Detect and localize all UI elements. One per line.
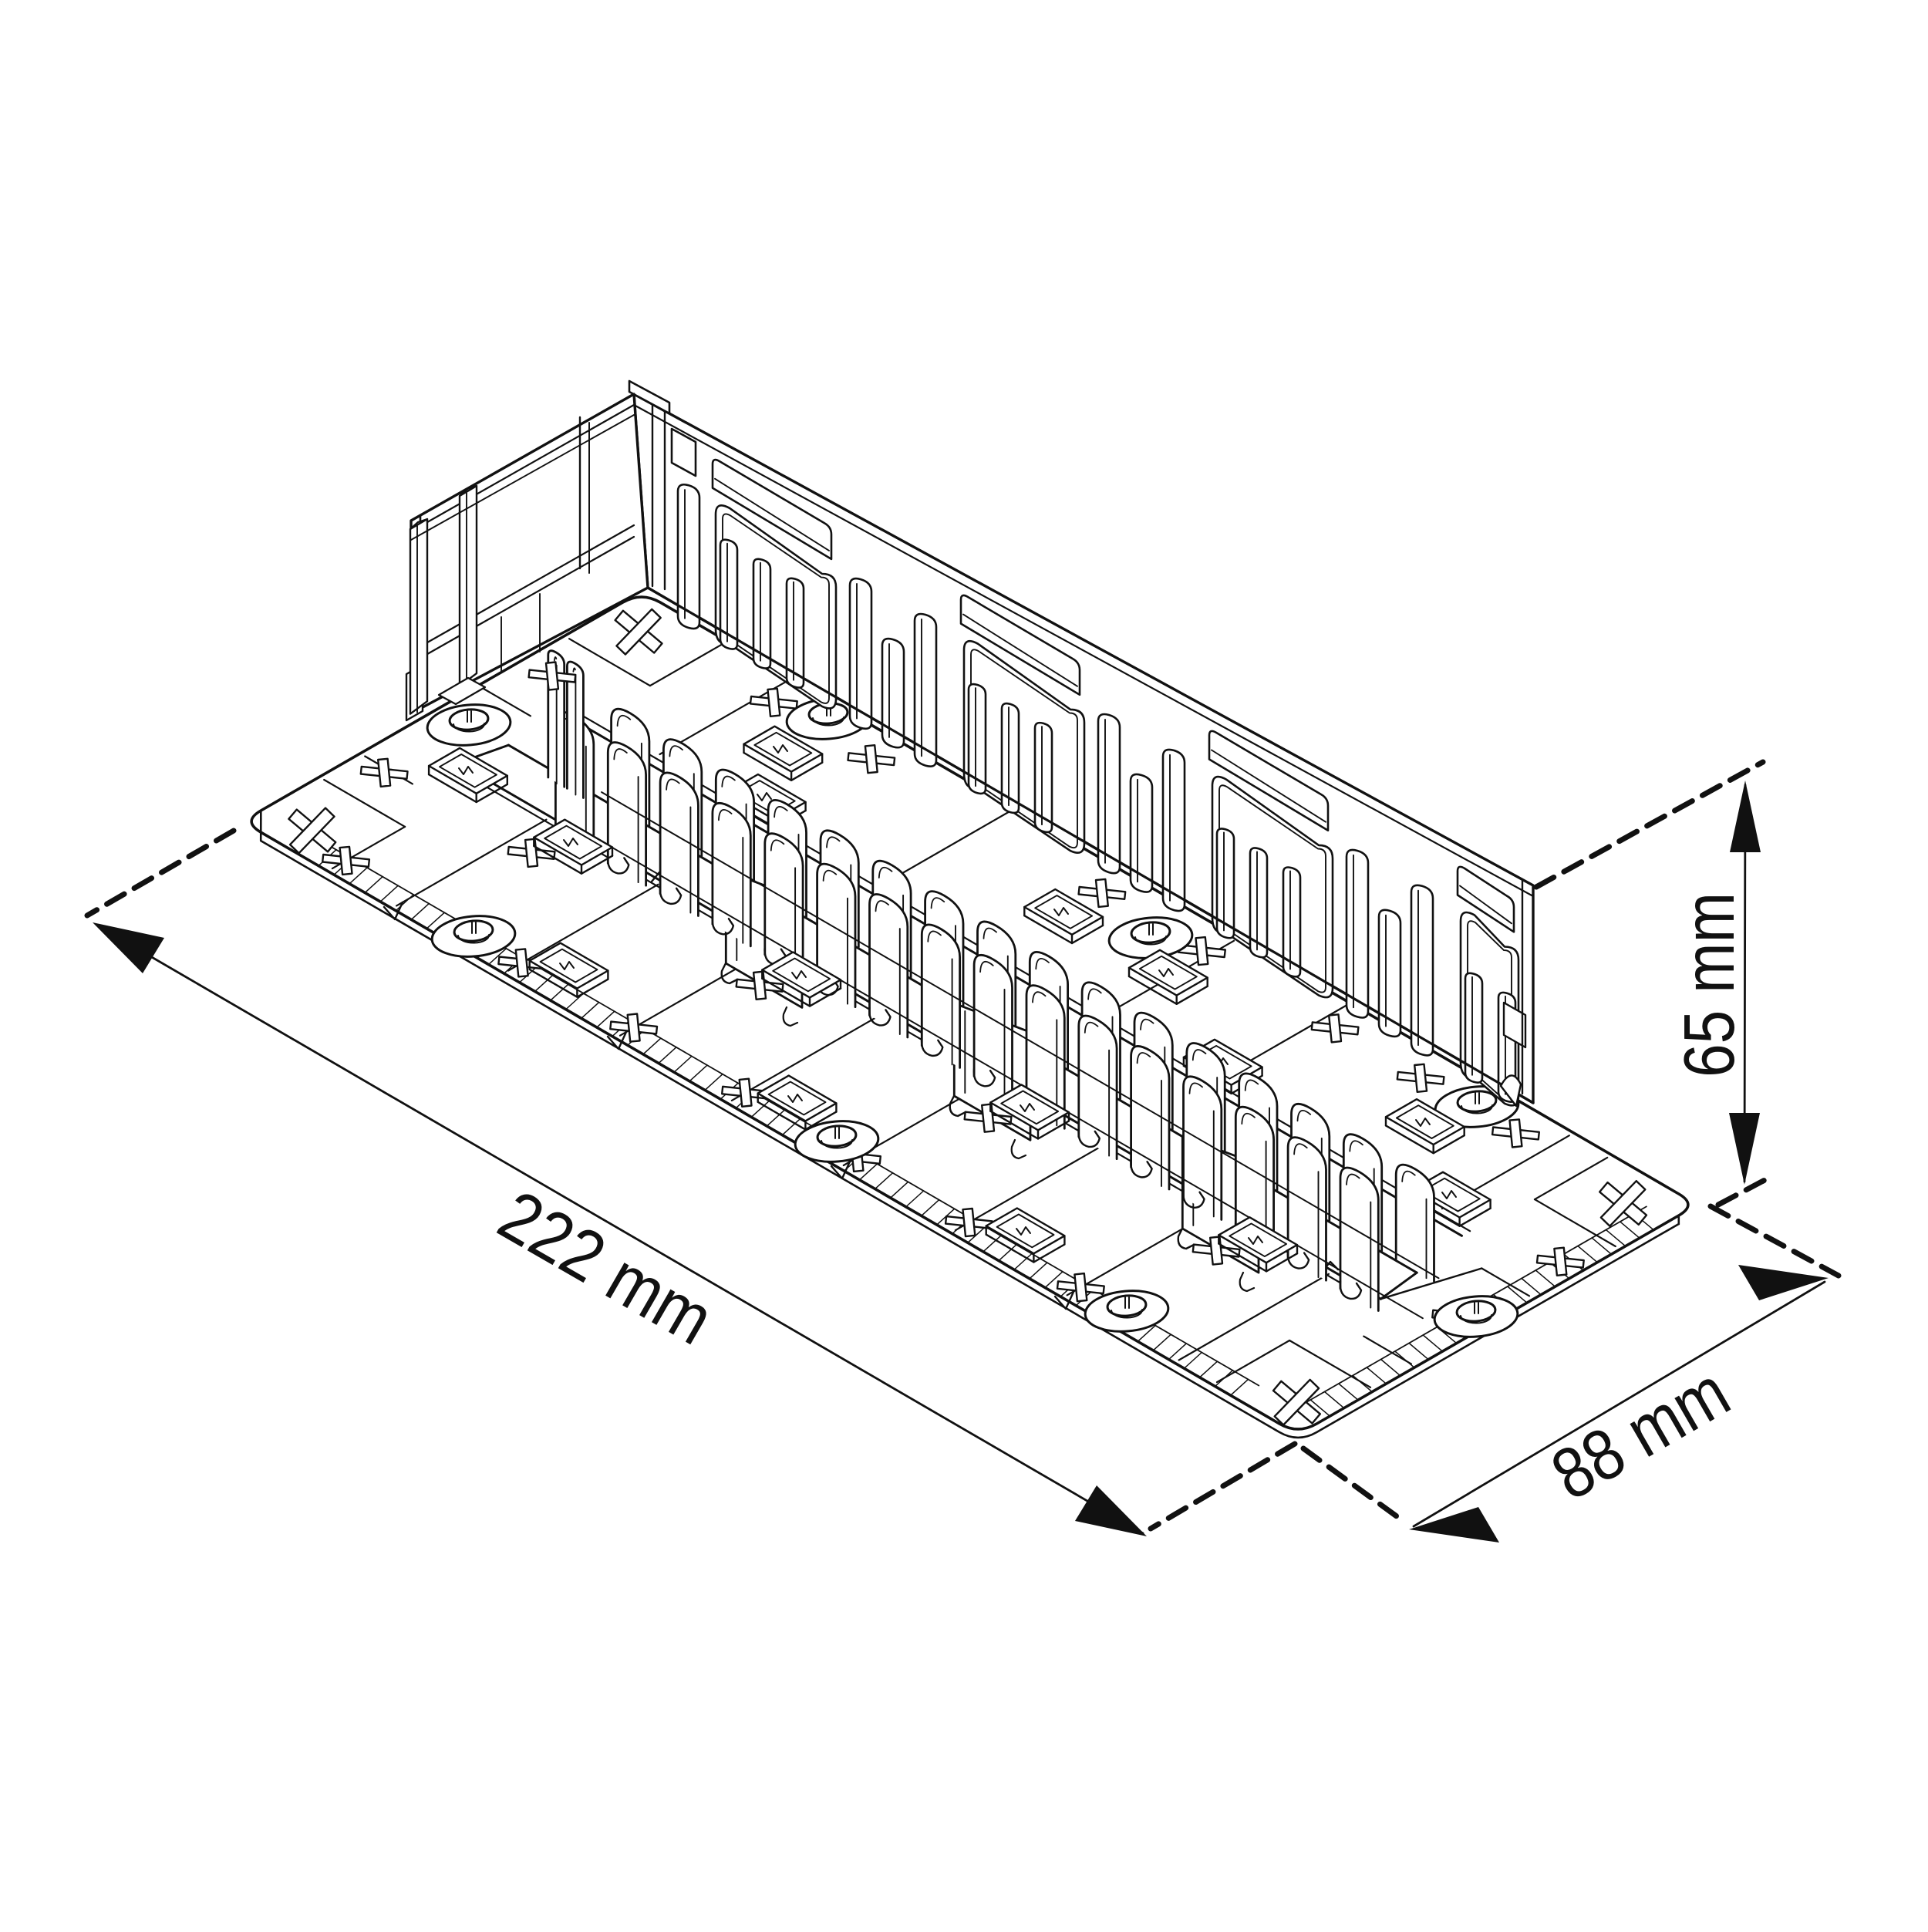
svg-text:65 mm: 65 mm (1669, 892, 1749, 1077)
